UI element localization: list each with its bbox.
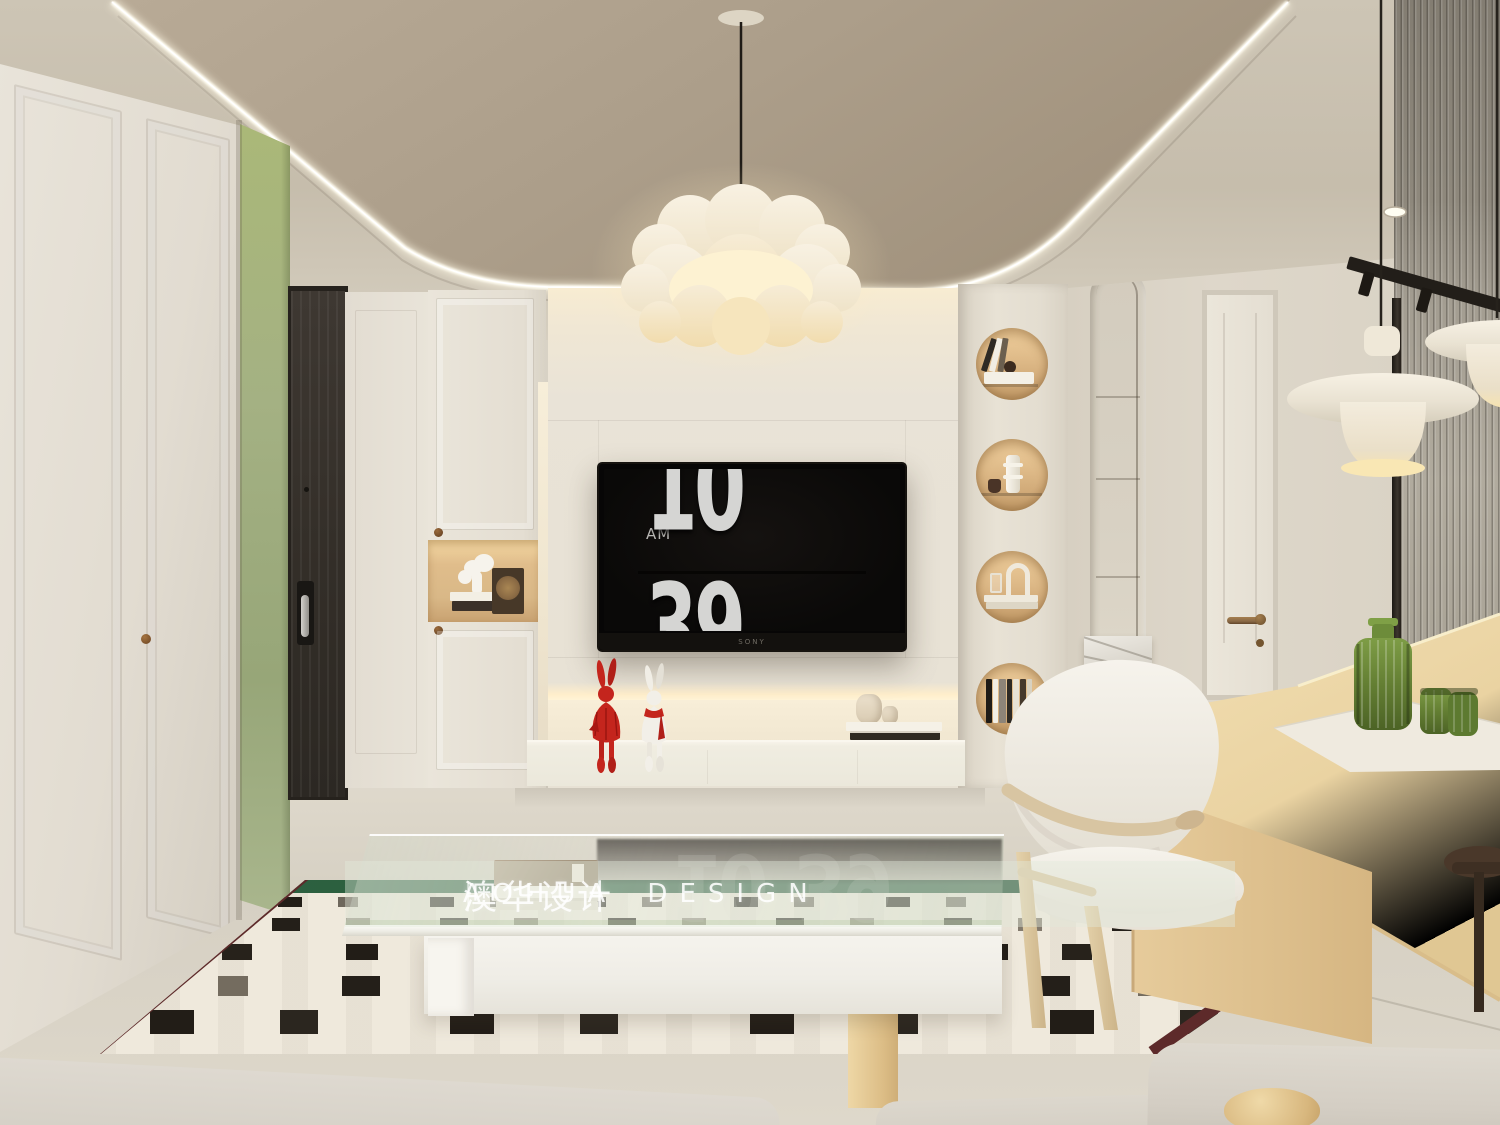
stacked-book xyxy=(986,602,1038,609)
coral-sculpture xyxy=(474,554,494,572)
red-rabbit xyxy=(589,658,620,773)
sofa-arm-right xyxy=(1147,1042,1500,1125)
entry-cabinet xyxy=(428,290,546,788)
television: AM 10 39 SONY xyxy=(597,462,907,652)
circle-niche-2 xyxy=(976,439,1048,511)
coffee-table-leg xyxy=(428,938,474,1016)
wardrobe xyxy=(0,0,242,1060)
circle-niche-1 xyxy=(976,328,1048,400)
wardrobe-knob xyxy=(141,634,151,644)
wall-molding xyxy=(355,310,417,754)
cabinet-display-niche xyxy=(428,540,540,622)
coral-sculpture-base xyxy=(472,572,482,594)
cabinet-door-lower xyxy=(436,630,534,770)
totem-disc xyxy=(1003,475,1023,479)
interior-render: AM 10 39 SONY xyxy=(0,0,1500,1125)
coffee-table-base xyxy=(424,936,1002,1014)
smart-lock-handle xyxy=(301,595,309,637)
wardrobe-side-edge xyxy=(236,120,242,920)
recessed-spotlight xyxy=(1384,207,1406,217)
green-glass-vase-small xyxy=(1420,688,1478,736)
console-book xyxy=(846,722,942,731)
arch-sculpture xyxy=(1006,563,1030,595)
niche-shelf xyxy=(982,384,1038,387)
rabbit-figurines xyxy=(575,652,690,777)
green-glass-vase-large xyxy=(1354,618,1412,730)
wardrobe-door-panel xyxy=(14,84,122,961)
wood-bowl-decor xyxy=(1224,1088,1320,1125)
totem-candlestick xyxy=(1006,455,1020,493)
console-seam xyxy=(857,750,858,784)
tv-screen: AM 10 39 xyxy=(604,469,900,631)
wardrobe-door-panel xyxy=(146,118,230,939)
tv-brand-logo: SONY xyxy=(738,638,765,646)
window-mullion xyxy=(1096,396,1140,398)
window-mullion xyxy=(1096,478,1140,480)
chair-back-cushion xyxy=(1005,660,1219,873)
watermark-english: AOHUA DESIGN xyxy=(463,879,820,909)
hallway-wall xyxy=(345,292,430,788)
cove-light-sliver xyxy=(538,382,548,764)
entry-door xyxy=(291,291,345,797)
wall-panel-seam xyxy=(548,420,960,421)
smart-lock xyxy=(297,581,314,645)
flip-clock-split-line xyxy=(638,571,866,574)
white-rabbit xyxy=(642,663,667,772)
coral-sculpture xyxy=(458,570,472,584)
dark-vessel xyxy=(988,479,1001,493)
console-seam xyxy=(707,750,708,784)
woven-art xyxy=(496,576,520,600)
lamp-glow xyxy=(1341,459,1425,477)
circle-niche-3 xyxy=(976,551,1048,623)
lamp-cap xyxy=(1364,326,1400,356)
stacked-book xyxy=(984,595,1038,602)
entry-door-frame xyxy=(288,286,348,800)
boucle-chair xyxy=(980,630,1270,1040)
green-accent-panel xyxy=(240,124,290,916)
white-box xyxy=(984,372,1034,384)
totem-disc xyxy=(1003,463,1023,467)
coffee-table-wood-support xyxy=(848,1002,898,1108)
peephole xyxy=(304,487,309,492)
window-mullion xyxy=(1096,576,1140,578)
face-vase-large xyxy=(856,694,882,724)
cloud-chandelier xyxy=(590,0,910,380)
cabinet-knob xyxy=(434,528,443,537)
tv-bezel: SONY xyxy=(599,633,905,650)
watermark-banner: 澳华设计 | AOHUA DESIGN xyxy=(345,861,1235,927)
cabinet-door-upper xyxy=(436,298,534,530)
flip-clock-time: 10 39 xyxy=(645,469,858,631)
niche-shelf xyxy=(980,493,1042,496)
glass-lantern xyxy=(990,573,1002,593)
console-book xyxy=(850,731,940,740)
dining-pendant-lamps xyxy=(1280,0,1500,500)
round-art-frame xyxy=(492,568,524,614)
